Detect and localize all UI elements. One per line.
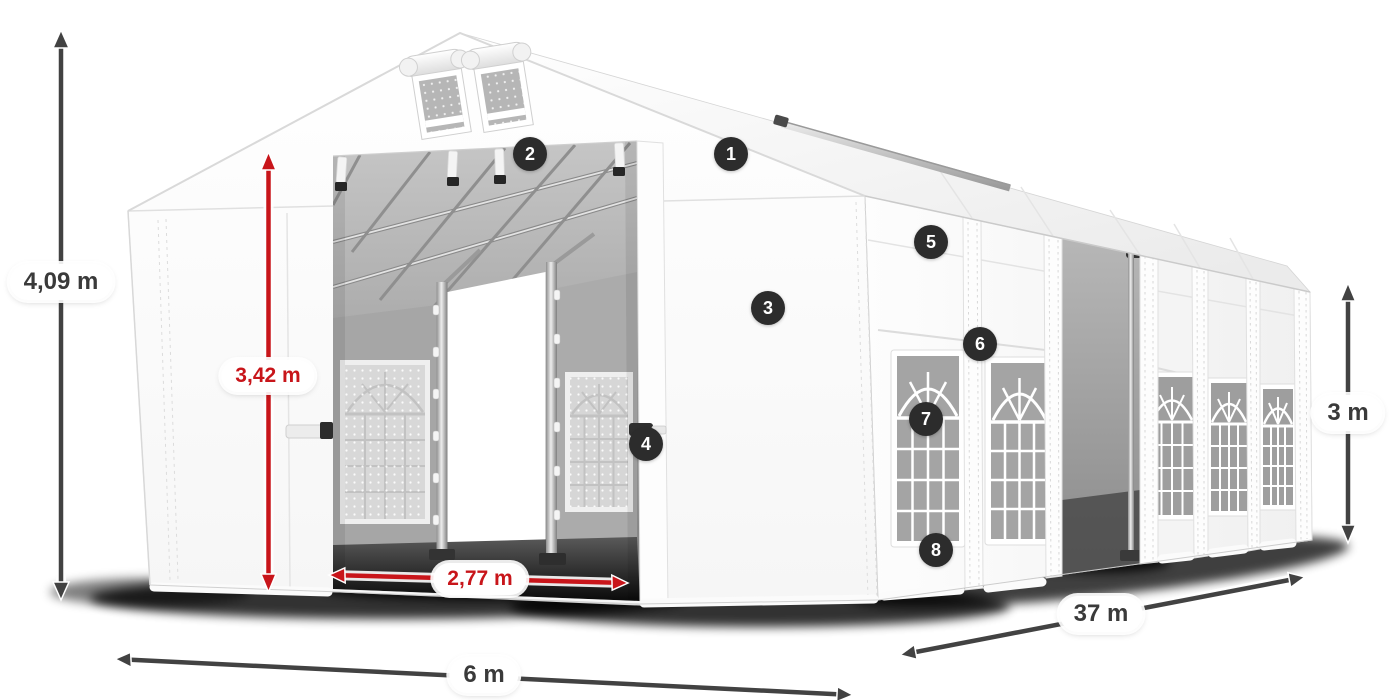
callout-4[interactable]: 4 [629, 427, 663, 461]
callout-7[interactable]: 7 [909, 402, 943, 436]
callout-5[interactable]: 5 [914, 225, 948, 259]
callout-6[interactable]: 6 [963, 327, 997, 361]
callout-3[interactable]: 3 [751, 291, 785, 325]
side-window [985, 357, 1054, 545]
side-window [1258, 384, 1298, 510]
callout-2[interactable]: 2 [513, 137, 547, 171]
callout-8[interactable]: 8 [919, 533, 953, 567]
dimension-label-total-height: 4,09 m [10, 264, 113, 300]
tent-illustration [0, 0, 1400, 700]
side-window [1206, 378, 1252, 516]
side-window [891, 350, 965, 547]
tent-dimension-diagram: 4,09 m 3,42 m 2,77 m 6 m 37 m 3 m 1 2 3 … [0, 0, 1400, 700]
dimension-label-side-height: 3 m [1313, 395, 1382, 431]
dimension-label-length: 37 m [1060, 596, 1143, 632]
dimension-label-width: 6 m [449, 657, 518, 693]
dimension-label-entrance-width: 2,77 m [433, 563, 526, 595]
dimension-label-entrance-height: 3,42 m [221, 360, 314, 392]
callout-1[interactable]: 1 [714, 137, 748, 171]
